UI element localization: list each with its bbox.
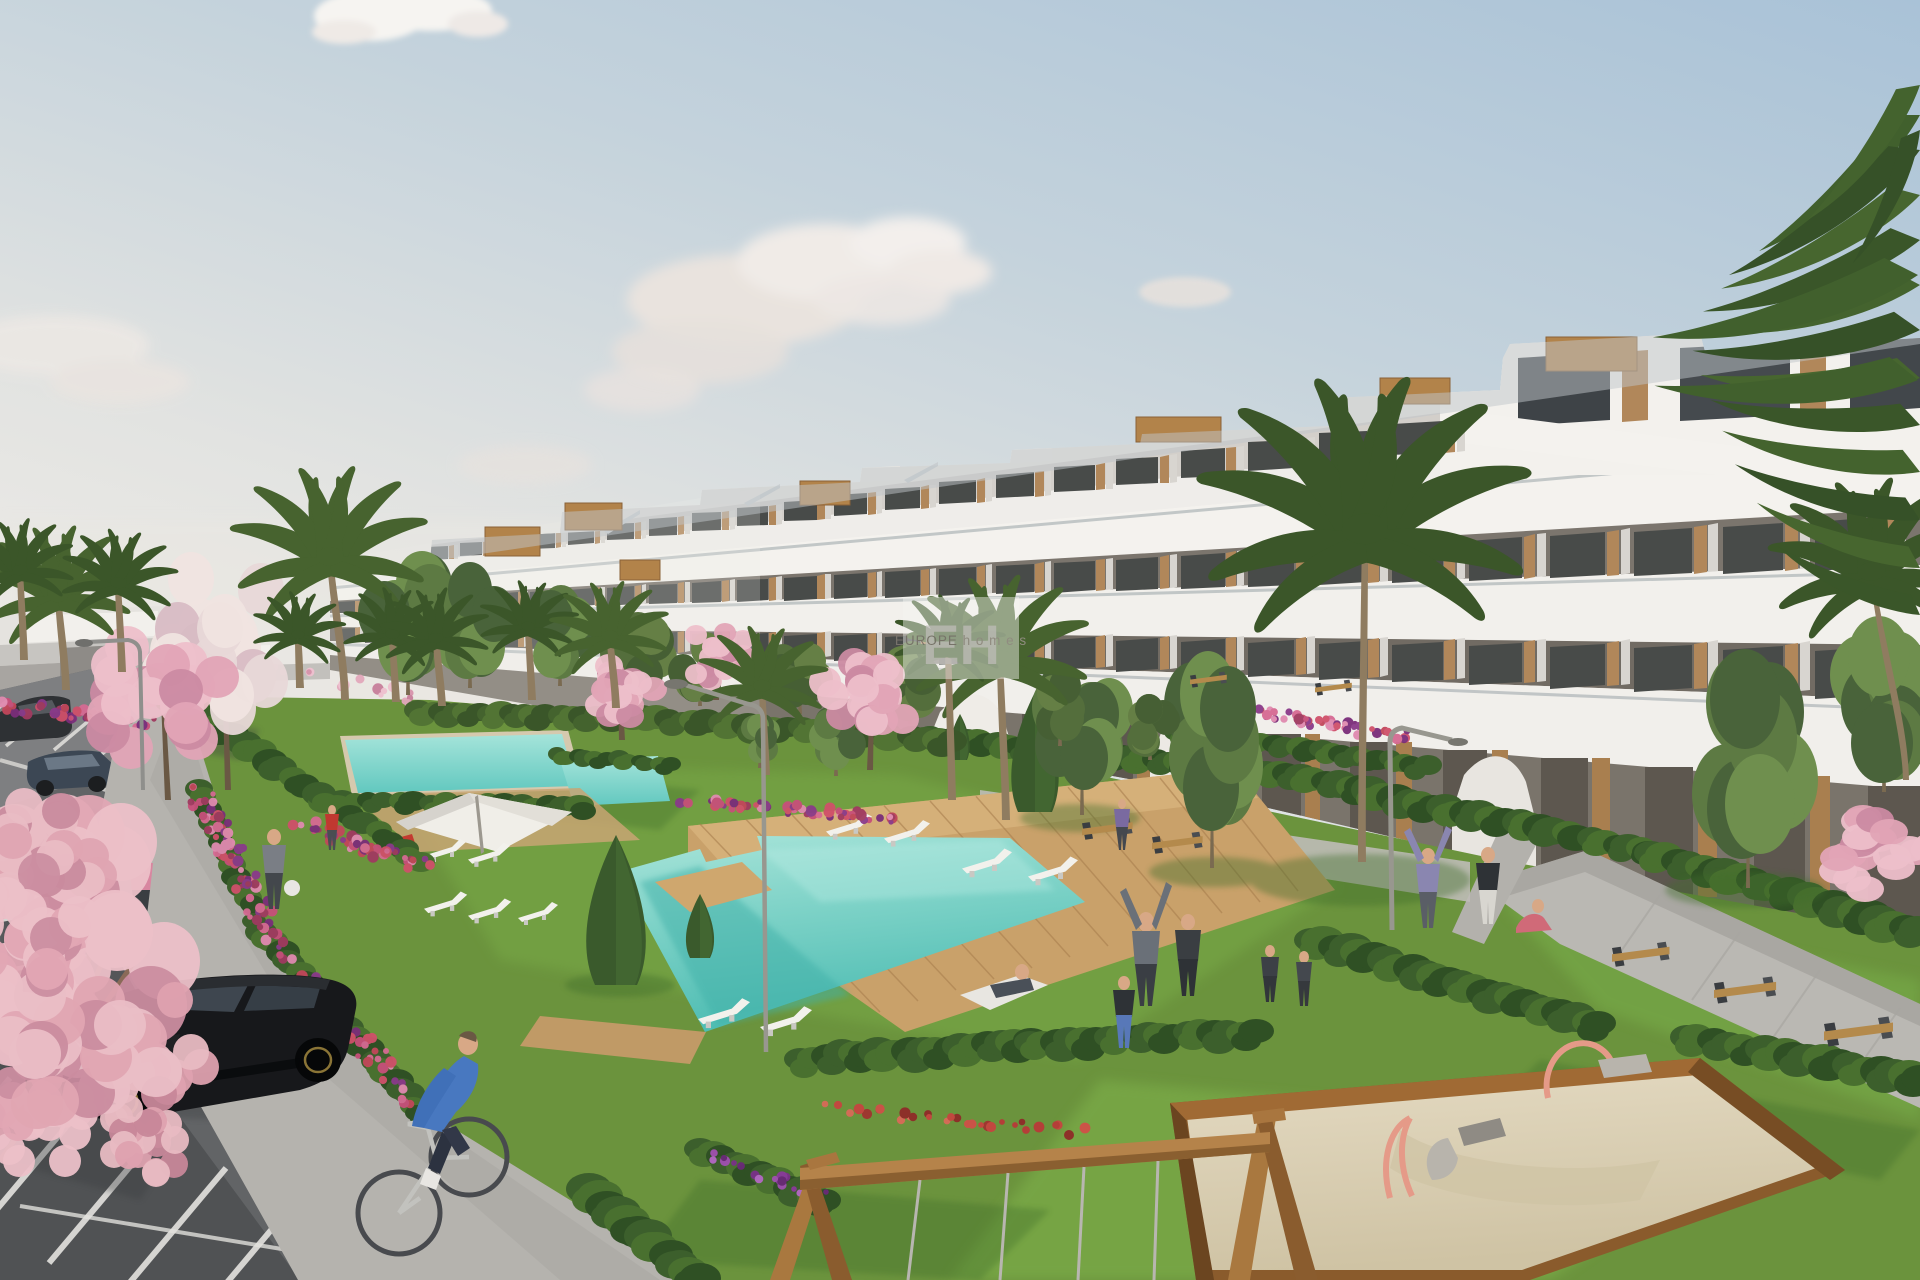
svg-text:EUROPE h o m e s: EUROPE h o m e s (895, 633, 1027, 648)
